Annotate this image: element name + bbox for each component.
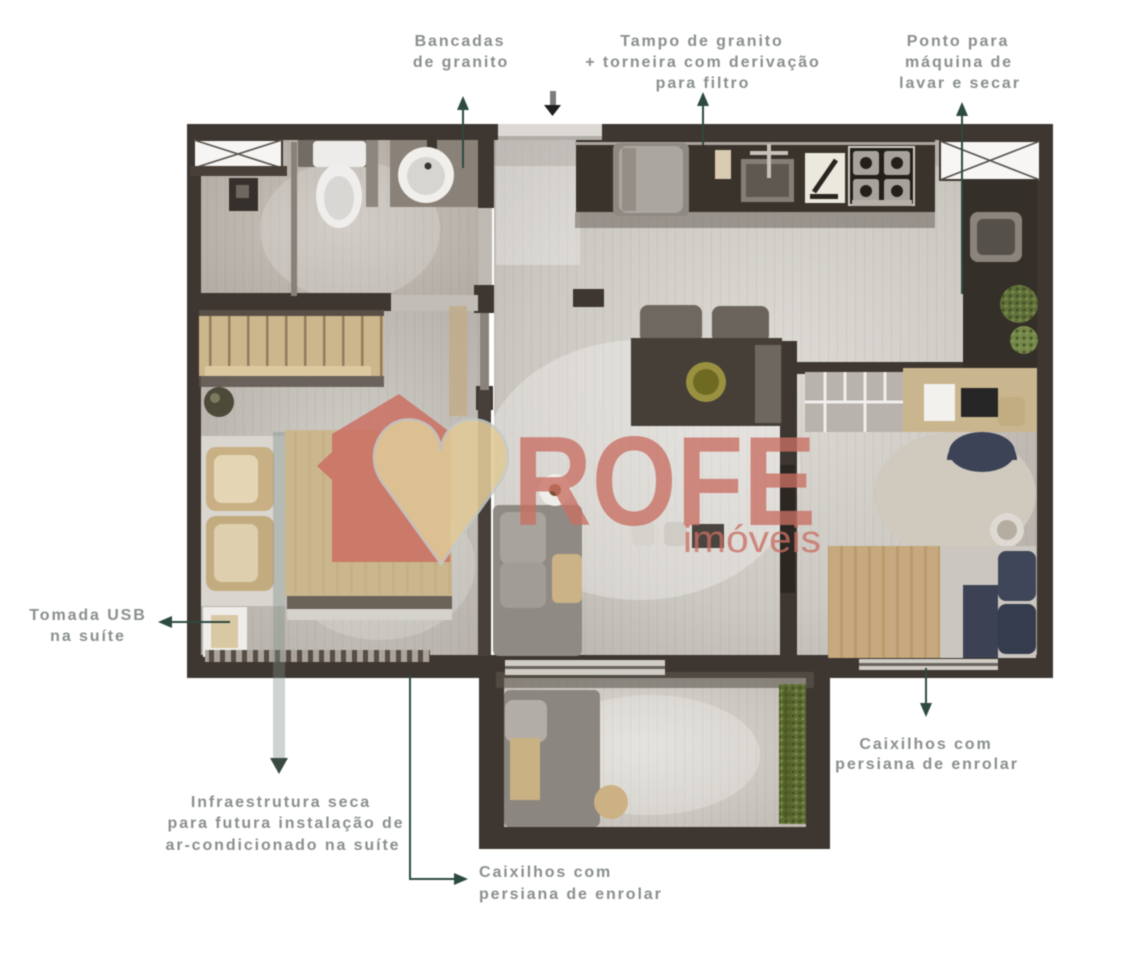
svg-text:máquina de: máquina de (905, 54, 1013, 71)
svg-text:Bancadas: Bancadas (415, 33, 506, 50)
svg-text:Infraestrutura seca: Infraestrutura seca (191, 794, 371, 811)
svg-text:Ponto para: Ponto para (907, 33, 1010, 50)
svg-text:persiana de enrolar: persiana de enrolar (479, 886, 663, 903)
svg-text:Caixilhos com: Caixilhos com (479, 864, 612, 881)
svg-text:Tampo de granito: Tampo de granito (620, 33, 783, 50)
svg-text:Caixilhos com: Caixilhos com (859, 736, 992, 753)
svg-text:de granito: de granito (413, 54, 509, 71)
svg-text:para filtro: para filtro (656, 75, 751, 92)
svg-text:na suíte: na suíte (50, 628, 126, 645)
svg-text:para futura instalação de: para futura instalação de (168, 815, 405, 832)
svg-text:imóveis: imóveis (683, 519, 821, 561)
svg-text:+ torneira com derivação: + torneira com derivação (585, 54, 820, 71)
svg-text:lavar e secar: lavar e secar (899, 75, 1021, 92)
svg-text:ar-condicionado na suíte: ar-condicionado na suíte (166, 837, 401, 854)
svg-text:persiana de enrolar: persiana de enrolar (835, 756, 1019, 773)
svg-text:Tomada USB: Tomada USB (29, 607, 146, 624)
